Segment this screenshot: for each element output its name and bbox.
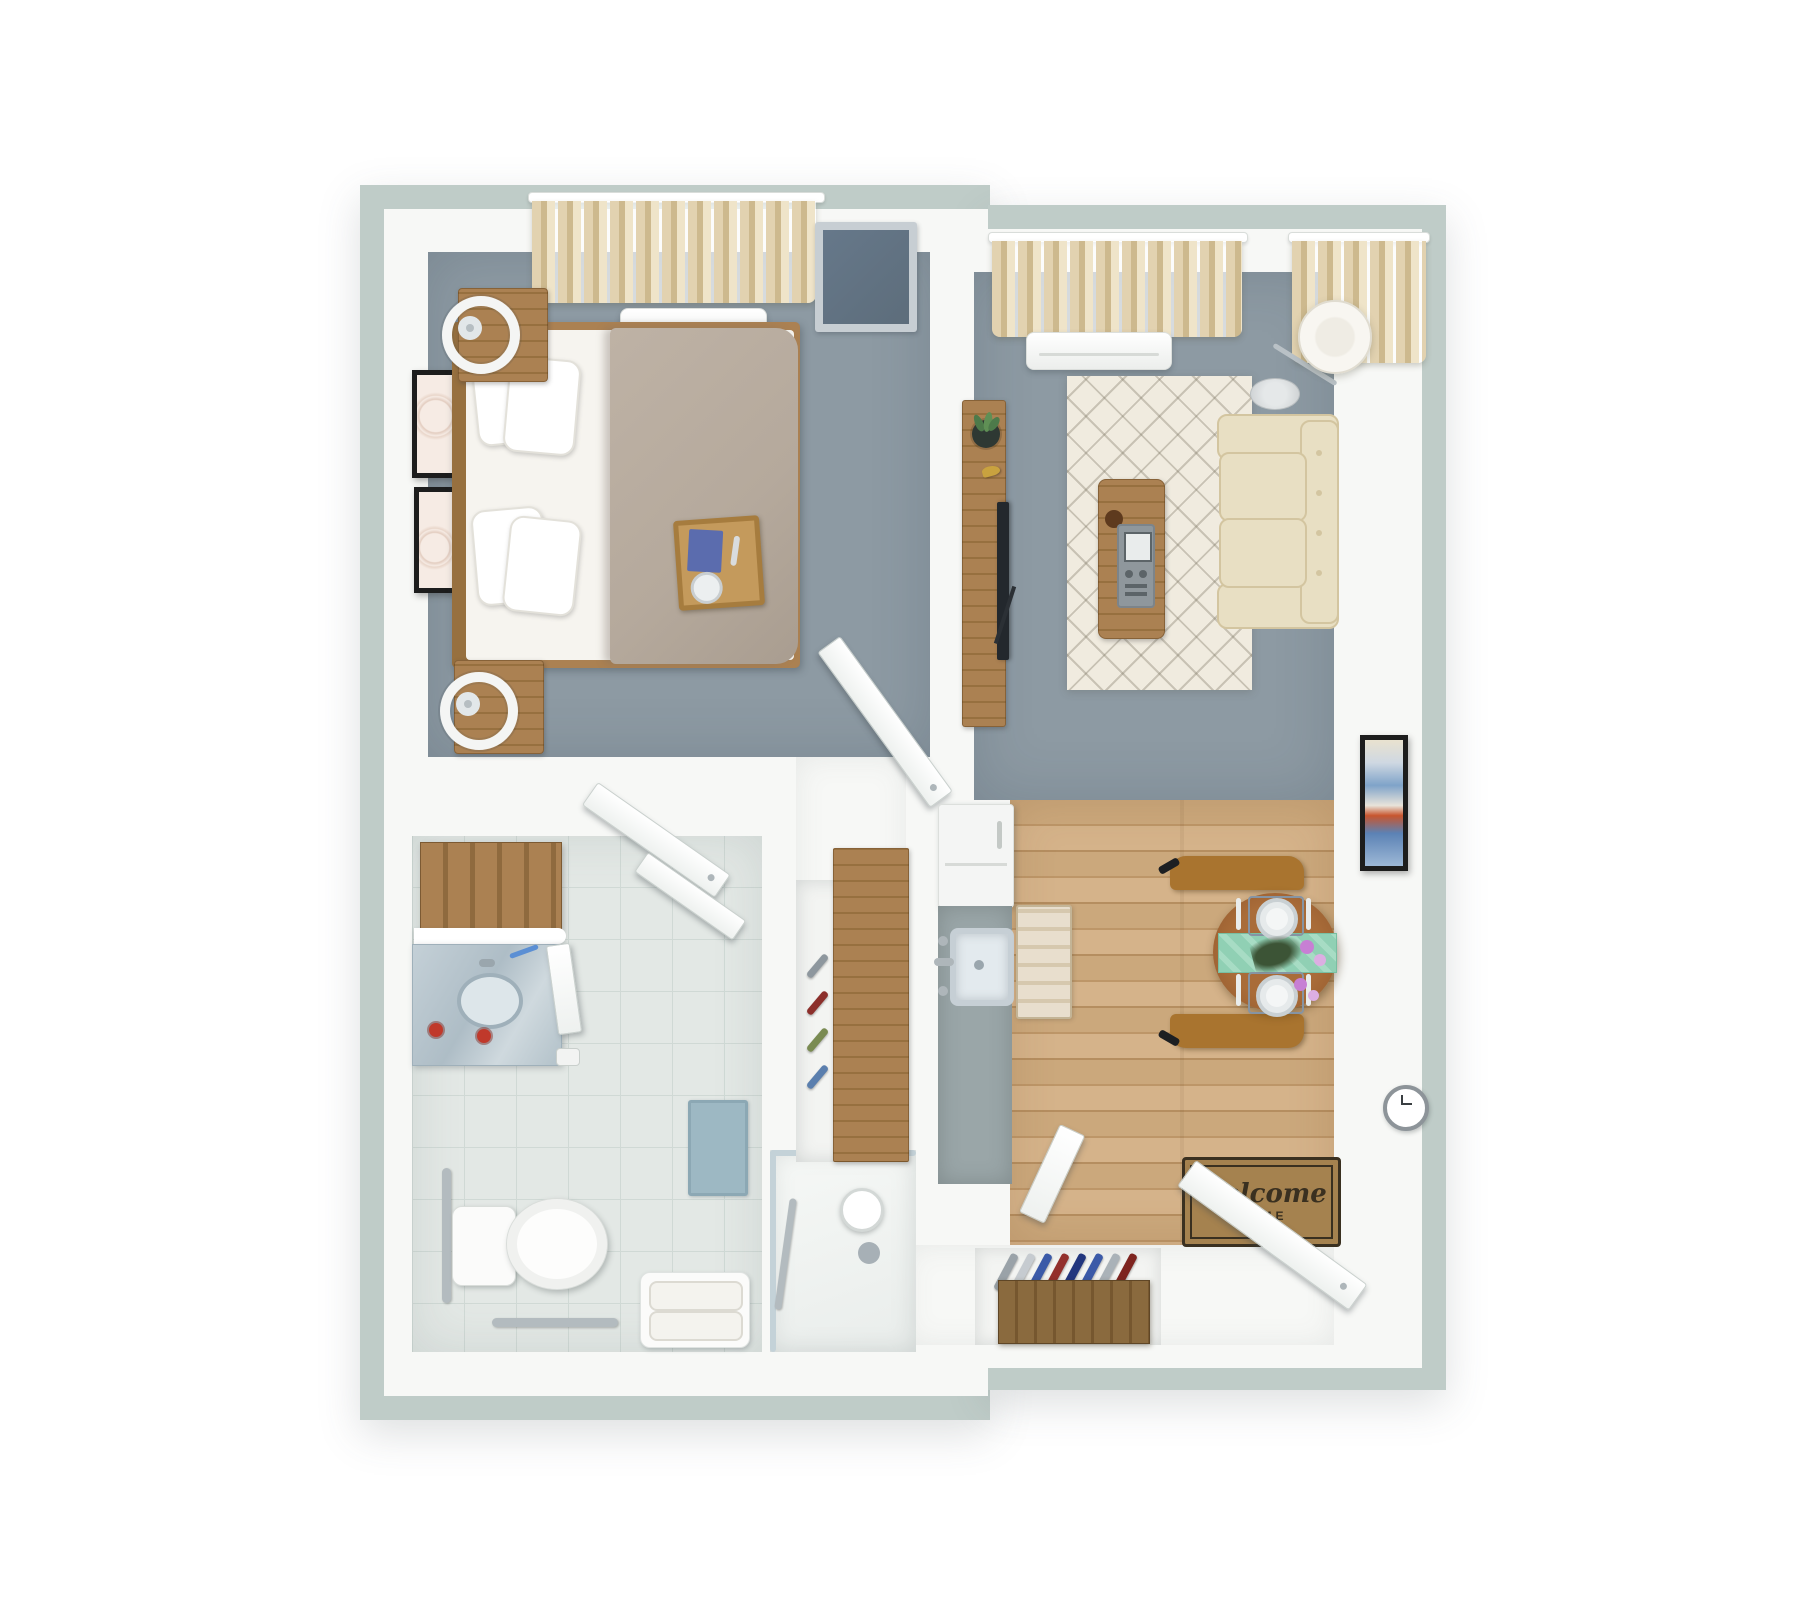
grab-bar-vertical	[442, 1168, 451, 1303]
bedroom-curtains	[532, 201, 816, 303]
nightstand-lamp-bottom	[440, 672, 518, 750]
sink-handle-2	[938, 986, 948, 996]
walk-in-shower	[770, 1150, 916, 1352]
blue-bath-mat	[688, 1100, 748, 1196]
clock-hand-minute	[1402, 1103, 1412, 1105]
wardrobe-shoe	[805, 1027, 828, 1053]
living-ac-unit	[1026, 332, 1172, 370]
cutlery-top-right	[1306, 898, 1311, 930]
coffee-table	[1098, 479, 1165, 639]
shower-glass-left	[770, 1150, 776, 1352]
kitchen-runner-rug	[1016, 905, 1072, 1019]
toiletry-bottle-2	[477, 1029, 491, 1043]
vanity-sink	[457, 973, 523, 1029]
bathroom-vanity	[412, 944, 562, 1066]
sofa-seat-cushion-1	[1219, 452, 1307, 522]
floor-plan: Welcome HOME	[0, 0, 1800, 1600]
bedroom-dresser	[815, 222, 917, 332]
toilet-bowl	[506, 1198, 608, 1290]
sofa-seat-cushion-2	[1219, 518, 1307, 588]
floor-lamp-base	[1250, 378, 1300, 410]
grab-bar-horizontal	[492, 1318, 618, 1327]
vanity-faucet	[479, 959, 495, 967]
wardrobe-wood-door	[833, 848, 909, 1162]
dining-chair-bottom	[1170, 1014, 1304, 1048]
toothbrush	[509, 944, 539, 959]
bath-counter-ledge	[414, 928, 566, 944]
tray-spoon	[730, 536, 740, 567]
kitchen-counter	[938, 906, 1012, 1184]
wardrobe-shoe	[805, 953, 828, 979]
bed-pillow-4	[501, 514, 583, 617]
towel-bench	[640, 1272, 750, 1348]
remote-tray	[1117, 524, 1155, 608]
shower-drain	[858, 1242, 880, 1264]
potted-plant	[972, 420, 1000, 448]
floor-lamp-shade	[1298, 300, 1372, 374]
wardrobe-shoe	[805, 1064, 828, 1090]
shower-grab-bar	[774, 1198, 797, 1310]
dining-chair-top	[1170, 856, 1304, 890]
wall-clock	[1383, 1085, 1429, 1131]
living-curtains-left	[992, 241, 1242, 337]
shoe-rack-box	[998, 1280, 1150, 1344]
sofa-back	[1300, 420, 1339, 624]
centerpiece-flowers	[1288, 930, 1338, 1010]
cutlery-bottom-left	[1236, 974, 1241, 1006]
dining-wall-art	[1360, 735, 1408, 871]
tray-napkin	[687, 529, 723, 573]
bath-shelf-unit	[420, 842, 562, 930]
toiletry-bottle-1	[429, 1023, 443, 1037]
breakfast-tray	[673, 515, 765, 611]
shower-head	[840, 1188, 884, 1232]
refrigerator	[938, 804, 1014, 908]
bedroom-dresser-top	[823, 230, 909, 324]
tray-plate	[690, 571, 724, 605]
kitchen-sink	[950, 928, 1014, 1006]
wardrobe-shoes	[802, 952, 832, 1112]
wardrobe-shoe	[805, 990, 828, 1016]
cutlery-top-left	[1236, 898, 1241, 930]
toilet-paper-holder	[556, 1048, 580, 1066]
sink-handle-1	[938, 936, 948, 946]
bed-duvet	[610, 328, 798, 664]
nightstand-lamp-top	[442, 296, 520, 374]
sink-faucet-lever	[934, 958, 954, 966]
